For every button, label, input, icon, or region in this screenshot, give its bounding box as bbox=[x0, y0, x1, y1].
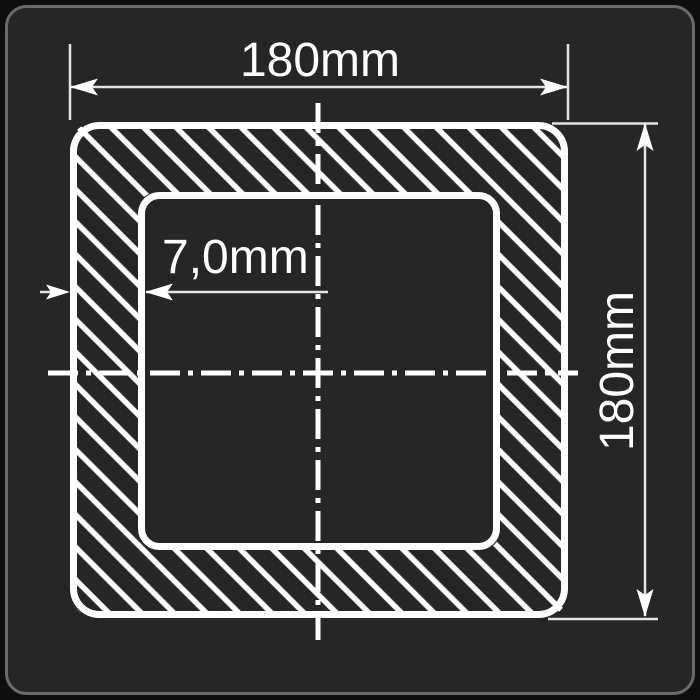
drawing-canvas: 180mm 180mm 7,0mm bbox=[0, 0, 700, 700]
cross-section-drawing: 180mm 180mm 7,0mm bbox=[0, 0, 700, 700]
width-dimension-label: 180mm bbox=[240, 34, 400, 87]
height-dimension-label: 180mm bbox=[591, 291, 644, 451]
wall-thickness-label: 7,0mm bbox=[162, 231, 309, 284]
